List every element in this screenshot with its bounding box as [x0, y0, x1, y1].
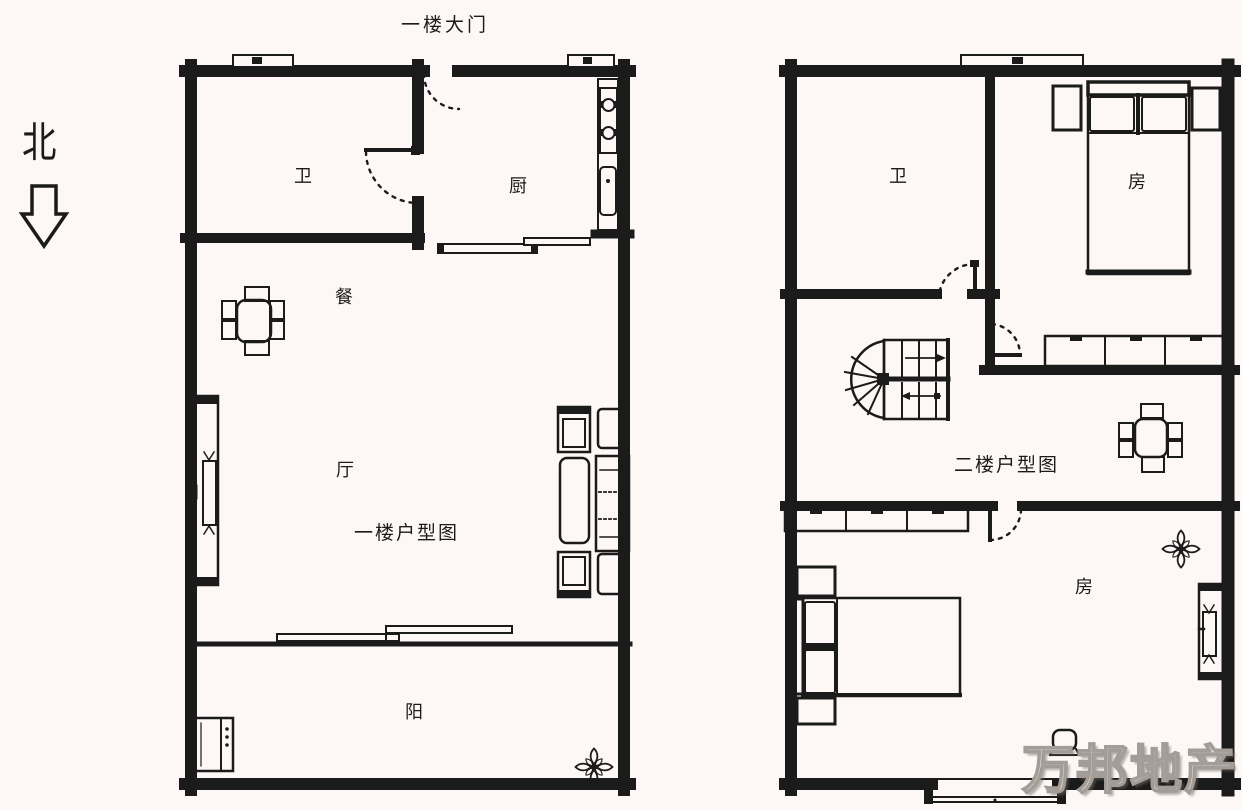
bedroom-lower-door [990, 509, 1021, 540]
bathroom1-door [366, 146, 420, 203]
floor1-balcony-label: 阳 [405, 704, 423, 722]
floor1-living-label: 厅 [336, 462, 354, 480]
north-arrow-icon [22, 186, 66, 246]
kitchen-sliding-door-icon [438, 238, 590, 253]
entry-door-arc [424, 74, 459, 109]
wardrobe-icon [785, 509, 968, 531]
tv-cabinet-icon [1199, 584, 1224, 679]
double-bed-icon [792, 567, 960, 724]
floor1-plan [185, 55, 630, 790]
floor1-kitchen-label: 厨 [509, 178, 527, 196]
floor1-bathroom-label: 卫 [294, 168, 312, 186]
floor1-dining-label: 餐 [335, 289, 353, 307]
entry-gate-label: 一楼大门 [401, 16, 489, 35]
bathroom2-door [939, 260, 979, 294]
floor2-bedroom-upper-label: 房 [1128, 174, 1146, 192]
compass-north-label: 北 [22, 122, 56, 164]
floor2-bathroom-label: 卫 [889, 168, 907, 186]
plant-icon [1163, 531, 1200, 568]
floor2-bedroom-lower-label: 房 [1075, 579, 1093, 597]
window-icon [961, 55, 1083, 66]
floor1-plan-label: 一楼户型图 [354, 524, 459, 543]
kitchen-counter-icon [598, 79, 618, 230]
dining-set-icon [1119, 404, 1182, 472]
balcony-sliding-door-icon [277, 626, 512, 641]
floor2-plan [785, 55, 1235, 804]
dining-set-icon [222, 287, 284, 355]
watermark: 万邦地产 [1022, 728, 1238, 803]
closet-icon [1045, 336, 1227, 366]
washing-machine-icon [192, 718, 233, 771]
floor-plan-page: 一楼大门 北 卫 厨 餐 厅 一楼户型图 阳 卫 房 二楼户型图 房 万邦地产 [0, 0, 1242, 810]
floor-plan-drawing [0, 0, 1242, 810]
bedroom-upper-door [992, 324, 1020, 355]
staircase-icon [845, 340, 948, 419]
floor2-plan-label: 二楼户型图 [954, 456, 1059, 475]
